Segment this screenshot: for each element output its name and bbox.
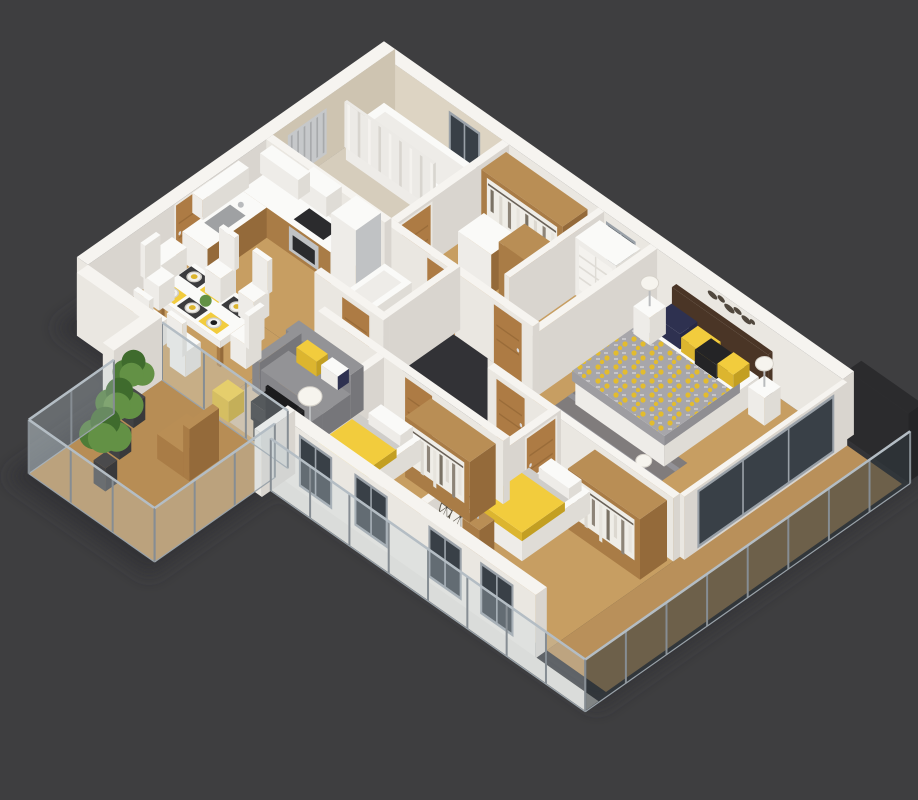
floor-plan-render [0, 0, 918, 800]
centerpiece [200, 295, 212, 307]
apartment-3d-floor-plan [0, 0, 918, 800]
faucet [238, 202, 244, 208]
